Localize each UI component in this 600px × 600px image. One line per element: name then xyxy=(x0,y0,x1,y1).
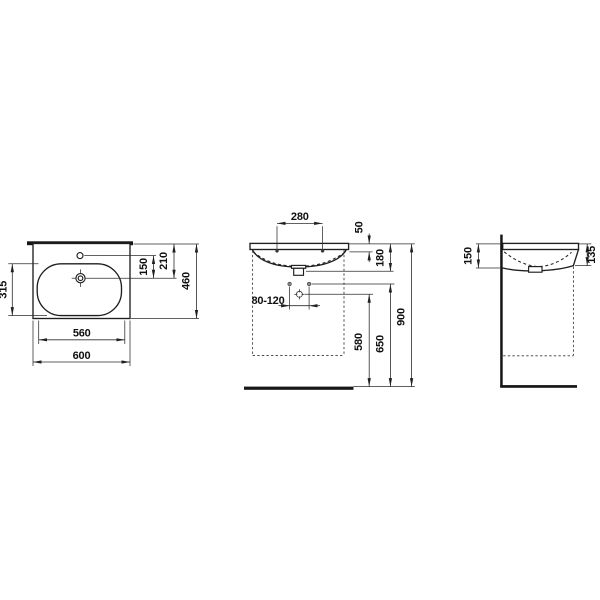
basin-rim-side xyxy=(503,243,579,249)
side-view: 150 135 xyxy=(463,235,598,388)
floor-bar xyxy=(244,387,354,390)
dim-supply-spacing-label: 80-120 xyxy=(251,295,284,307)
plan-view: 150 210 460 315 560 600 xyxy=(0,241,199,366)
dim-taphole-to-drain-label: 150 xyxy=(138,258,150,276)
dim-supply-height-label: 650 xyxy=(375,335,387,353)
basin-rim-front xyxy=(250,243,349,249)
drain-body xyxy=(294,268,304,275)
basin-bowl-top xyxy=(37,264,121,316)
dim-inner-width-label: 560 xyxy=(73,328,91,340)
drawing-sheet: 150 210 460 315 560 600 xyxy=(0,0,600,600)
drain-icon xyxy=(76,274,85,283)
hidden-bowl-contour xyxy=(253,252,345,266)
floor-bar-side xyxy=(500,385,577,388)
bowl-underside xyxy=(252,250,346,268)
dim-rim-to-fixing-label: 50 xyxy=(353,221,365,233)
supply-point-right xyxy=(307,282,311,286)
drain-body-side xyxy=(529,267,542,273)
washbasin-technical-drawing: 150 210 460 315 560 600 xyxy=(0,0,600,600)
supply-point-left xyxy=(288,282,292,286)
front-view: 80-120 280 50 180 580 650 900 xyxy=(244,211,415,390)
dim-fixing-hole-spacing-label: 280 xyxy=(291,211,309,223)
dim-rim-to-outlet-label: 180 xyxy=(375,249,387,267)
dim-rim-height-label: 900 xyxy=(396,308,408,326)
tap-hole-icon xyxy=(77,253,83,259)
dim-tap-supply-height-label: 580 xyxy=(353,333,365,351)
dim-front-edge-height-label: 135 xyxy=(586,246,598,264)
wall-line xyxy=(500,235,503,387)
dim-overall-width-label: 600 xyxy=(73,350,91,362)
dim-back-to-drain-label: 210 xyxy=(158,252,170,270)
hidden-bowl-contour-side xyxy=(504,252,571,267)
dim-back-edge-height-label: 150 xyxy=(463,247,475,265)
dim-basin-inner-depth-label: 315 xyxy=(0,281,9,299)
dim-overall-depth-label: 460 xyxy=(181,272,193,290)
